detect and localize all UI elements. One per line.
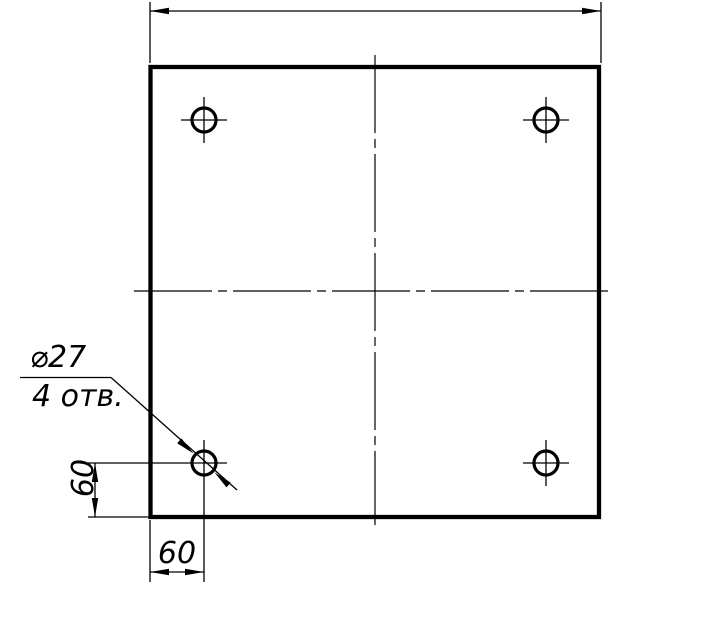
hole-top-left [181, 97, 227, 143]
leader-arrowhead-upper [177, 438, 193, 453]
engineering-drawing: 60 60 ⌀27 4 отв. [0, 0, 713, 631]
overall-width-dimension [150, 2, 601, 63]
hole-bottom-right [523, 440, 569, 486]
arrowhead-down [92, 498, 98, 517]
dimension-value-vertical: 60 [66, 459, 101, 497]
drawing-sheet: 60 60 ⌀27 4 отв. [0, 0, 713, 631]
hole-count-label: 4 отв. [32, 379, 124, 414]
hole-diameter-label: ⌀27 [30, 340, 86, 375]
hole-offset-vertical-dimension: 60 [66, 459, 152, 517]
leader-line [111, 378, 237, 491]
leader-arrowhead-lower [214, 472, 230, 487]
hole-offset-horizontal-dimension: 60 [150, 520, 204, 582]
arrowhead-left [150, 8, 169, 14]
hole-top-right [523, 97, 569, 143]
arrowhead-right [582, 8, 601, 14]
dimension-value-horizontal: 60 [158, 536, 196, 571]
